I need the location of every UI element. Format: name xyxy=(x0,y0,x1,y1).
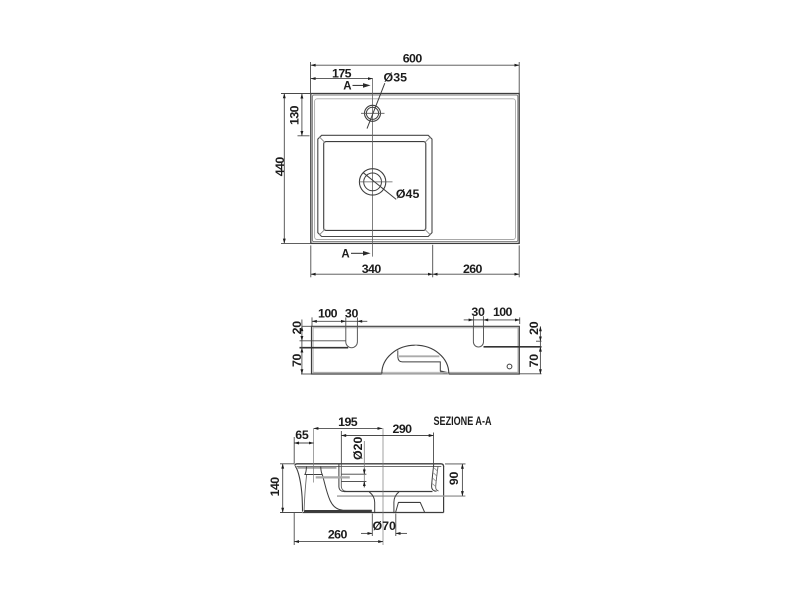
svg-text:Ø35: Ø35 xyxy=(384,71,408,85)
svg-text:100: 100 xyxy=(493,305,513,319)
svg-text:30: 30 xyxy=(345,306,359,320)
svg-text:260: 260 xyxy=(328,527,348,541)
svg-text:Ø70: Ø70 xyxy=(372,519,396,533)
svg-text:260: 260 xyxy=(463,262,483,276)
svg-text:30: 30 xyxy=(471,305,485,319)
svg-text:A: A xyxy=(341,248,349,260)
svg-text:290: 290 xyxy=(393,422,413,436)
svg-text:340: 340 xyxy=(362,262,382,276)
svg-text:20: 20 xyxy=(527,321,541,335)
svg-text:175: 175 xyxy=(332,66,352,80)
svg-text:65: 65 xyxy=(295,428,309,442)
svg-text:140: 140 xyxy=(268,477,282,497)
svg-text:600: 600 xyxy=(403,51,423,65)
svg-text:Ø45: Ø45 xyxy=(396,187,420,201)
svg-text:20: 20 xyxy=(290,321,304,335)
svg-text:70: 70 xyxy=(290,353,304,367)
svg-text:90: 90 xyxy=(447,472,461,486)
svg-text:440: 440 xyxy=(273,157,287,177)
svg-text:70: 70 xyxy=(527,354,541,368)
svg-text:A: A xyxy=(343,80,351,92)
svg-text:130: 130 xyxy=(288,105,302,125)
svg-text:100: 100 xyxy=(318,306,338,320)
svg-text:Ø20: Ø20 xyxy=(351,436,365,460)
svg-text:SEZIONE A-A: SEZIONE A-A xyxy=(434,414,492,428)
svg-text:195: 195 xyxy=(338,415,358,429)
